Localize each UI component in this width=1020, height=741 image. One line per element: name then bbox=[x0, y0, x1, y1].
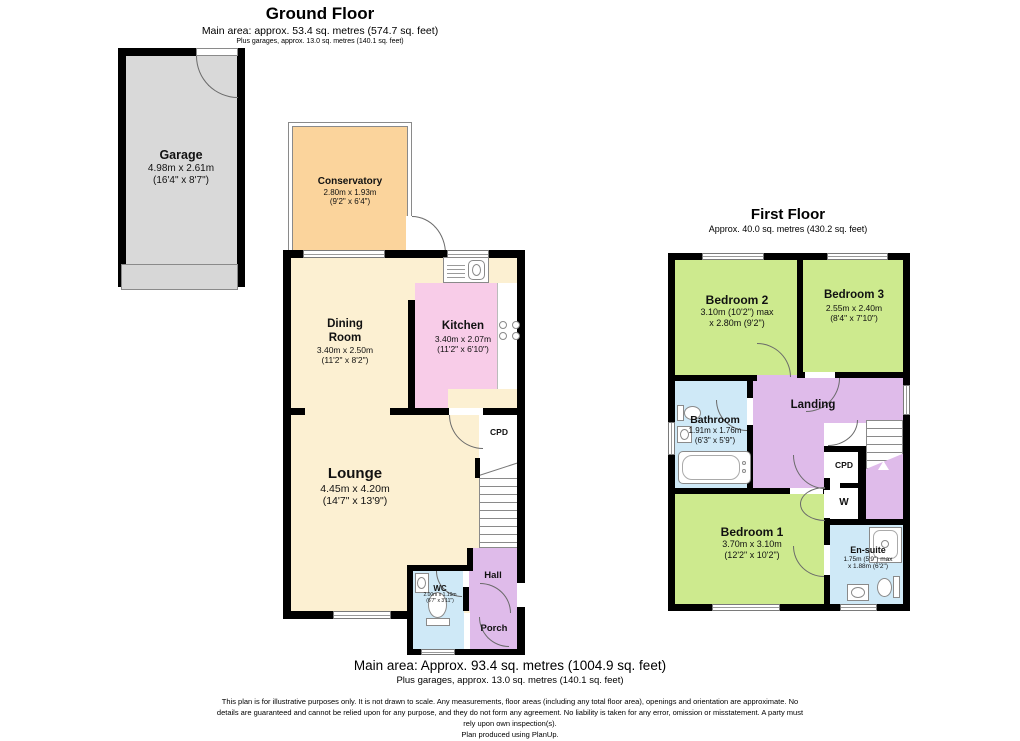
room-label-wardrobe: W bbox=[836, 497, 852, 509]
room-label-cpd-ground: CPD bbox=[483, 427, 515, 437]
wall bbox=[824, 519, 903, 525]
disclaimer-line-2: details are guaranteed and cannot be rel… bbox=[0, 708, 1020, 719]
room-label-bedroom2: Bedroom 2 3.10m (10'2") max x 2.80m (9'2… bbox=[677, 293, 797, 328]
wall bbox=[858, 446, 866, 525]
door-opening bbox=[824, 545, 830, 575]
room-label-cpd-first: CPD bbox=[831, 460, 857, 470]
toilet-cistern-icon bbox=[426, 618, 450, 626]
wall bbox=[797, 260, 803, 378]
door-arc bbox=[412, 216, 446, 254]
wall bbox=[675, 488, 757, 494]
room-label-landing: Landing bbox=[780, 399, 846, 413]
wall bbox=[283, 250, 291, 618]
footer-area-summary: Main area: Approx. 93.4 sq. metres (1004… bbox=[0, 658, 1020, 686]
garage-door-icon bbox=[121, 264, 238, 290]
draining-board-icon bbox=[447, 262, 465, 278]
room-label-bedroom3: Bedroom 3 2.55m x 2.40m (8'4" x 7'10") bbox=[805, 289, 903, 323]
door-arc bbox=[828, 420, 858, 446]
footer-garage-area: Plus garages, approx. 13.0 sq. metres (1… bbox=[0, 675, 1020, 686]
ground-floor-title: Ground Floor bbox=[175, 4, 465, 24]
disclaimer-line-1: This plan is for illustrative purposes o… bbox=[0, 697, 1020, 708]
wall bbox=[283, 408, 305, 415]
room-label-conservatory: Conservatory 2.80m x 1.93m (9'2" x 6'4") bbox=[290, 176, 410, 207]
wall bbox=[464, 649, 525, 655]
disclaimer-line-4: Plan produced using PlanUp. bbox=[0, 730, 1020, 741]
footer-main-area: Main area: Approx. 93.4 sq. metres (1004… bbox=[0, 658, 1020, 673]
room-label-lounge: Lounge 4.45m x 4.20m (14'7" x 13'9") bbox=[300, 465, 410, 507]
room-label-bathroom: Bathroom 1.91m x 1.76m (6'3" x 5'9") bbox=[672, 414, 758, 445]
room-label-wc: WC 2.00m x 1.19m (6'7" x 3'11") bbox=[415, 584, 465, 605]
room-label-kitchen: Kitchen 3.40m x 2.07m (11'2" x 6'10") bbox=[413, 320, 513, 354]
wall bbox=[467, 548, 473, 571]
first-floor-header: First Floor Approx. 40.0 sq. metres (430… bbox=[668, 206, 908, 234]
wall bbox=[840, 483, 858, 488]
room-label-hall: Hall bbox=[472, 570, 514, 581]
room-fill-kitchen bbox=[415, 389, 448, 408]
room-label-porch: Porch bbox=[470, 623, 518, 634]
garage-door-opening bbox=[196, 48, 238, 56]
window bbox=[421, 649, 455, 655]
room-label-garage: Garage 4.98m x 2.61m (16'4" x 8'7") bbox=[131, 148, 231, 186]
window bbox=[712, 604, 780, 611]
room-label-dining-room: Dining Room 3.40m x 2.50m (11'2" x 8'2") bbox=[295, 318, 395, 365]
wall bbox=[408, 300, 415, 415]
toilet-icon bbox=[877, 578, 892, 597]
disclaimer: This plan is for illustrative purposes o… bbox=[0, 697, 1020, 741]
window bbox=[827, 253, 888, 260]
window bbox=[333, 611, 391, 619]
room-fill-landing bbox=[866, 493, 903, 519]
ground-floor-header: Ground Floor Main area: approx. 53.4 sq.… bbox=[175, 4, 465, 45]
stairs-ground bbox=[479, 478, 518, 548]
first-floor-title: First Floor bbox=[668, 206, 908, 223]
toilet-cistern-icon bbox=[893, 576, 900, 598]
wall bbox=[903, 253, 910, 611]
window bbox=[840, 604, 877, 611]
door-opening bbox=[449, 408, 483, 415]
ground-floor-garage-note: Plus garages, approx. 13.0 sq. metres (1… bbox=[175, 38, 465, 45]
patio-door-opening bbox=[303, 250, 385, 258]
first-floor-area: Approx. 40.0 sq. metres (430.2 sq. feet) bbox=[668, 224, 908, 234]
room-label-bedroom1: Bedroom 1 3.70m x 3.10m (12'2" x 10'2") bbox=[692, 525, 812, 560]
window bbox=[903, 385, 910, 415]
wall bbox=[517, 250, 525, 619]
wall bbox=[407, 565, 413, 655]
wall bbox=[475, 458, 480, 478]
window bbox=[702, 253, 764, 260]
floor-plan: Ground Floor Main area: approx. 53.4 sq.… bbox=[0, 0, 1020, 741]
bath-inner bbox=[682, 455, 740, 480]
sink-bowl-icon bbox=[851, 587, 865, 598]
front-door-opening bbox=[517, 583, 525, 607]
bath-tap-icon bbox=[742, 461, 746, 465]
disclaimer-line-3: rely upon own inspection(s). bbox=[0, 719, 1020, 730]
bath-tap-icon bbox=[742, 469, 746, 473]
room-label-ensuite: En-suite 1.75m (5'9") max x 1.88m (6'2") bbox=[832, 545, 904, 571]
sink-bowl-icon bbox=[472, 264, 481, 276]
ground-floor-area: Main area: approx. 53.4 sq. metres (574.… bbox=[175, 25, 465, 37]
wall bbox=[675, 375, 757, 381]
